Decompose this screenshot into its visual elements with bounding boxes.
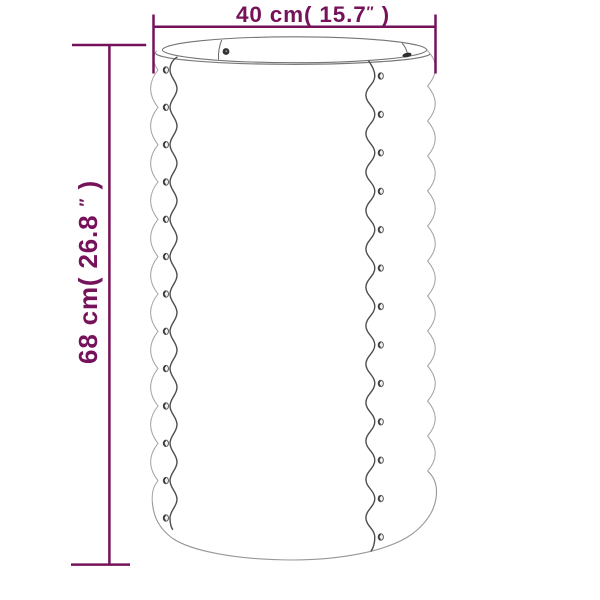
svg-text:68 cm( 26.8 ″ ): 68 cm( 26.8 ″ ) (73, 180, 103, 364)
